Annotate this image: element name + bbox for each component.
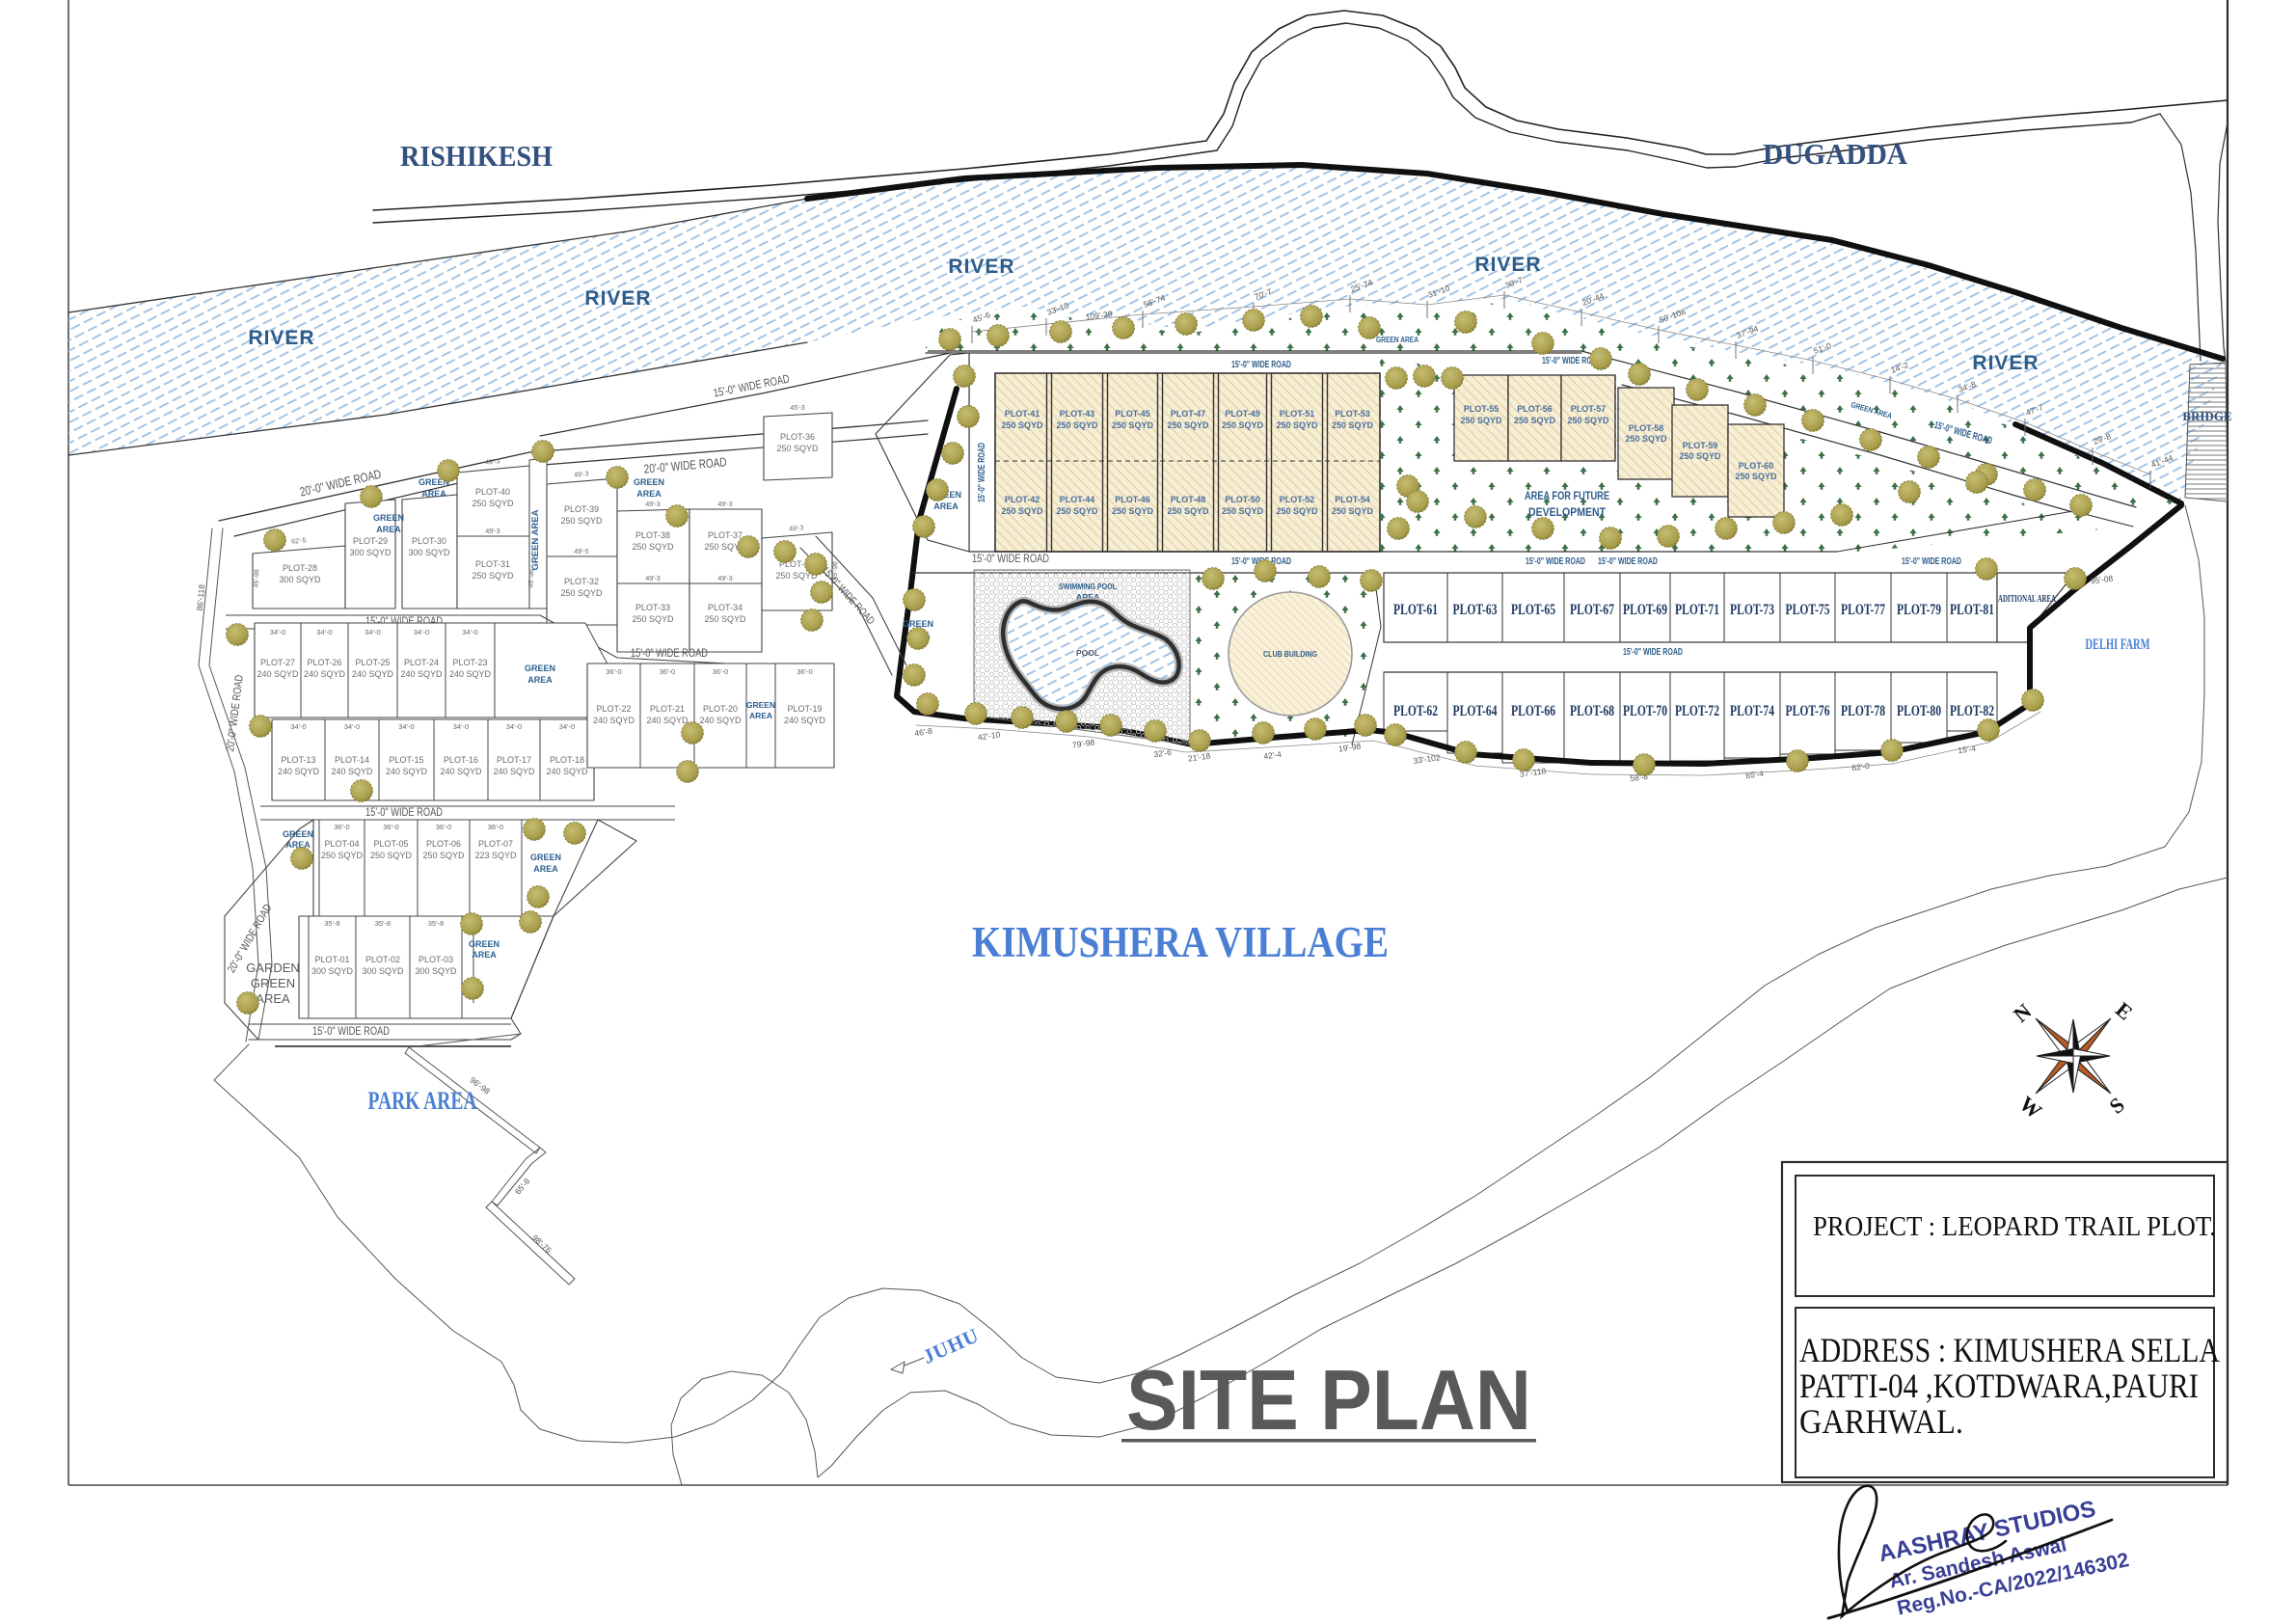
svg-text:250 SQYD: 250 SQYD (776, 444, 819, 453)
svg-text:15'-0" WIDE ROAD: 15'-0" WIDE ROAD (312, 1024, 390, 1038)
svg-text:PLOT-62: PLOT-62 (1393, 703, 1438, 719)
svg-text:36'-0: 36'-0 (383, 823, 398, 831)
svg-text:250 SQYD: 250 SQYD (632, 614, 674, 624)
svg-text:34'-0: 34'-0 (290, 722, 306, 731)
svg-text:PLOT-61: PLOT-61 (1393, 602, 1438, 618)
svg-text:GREEN: GREEN (530, 853, 561, 862)
svg-text:AREA: AREA (472, 950, 497, 960)
svg-text:GREEN: GREEN (469, 939, 500, 949)
svg-text:PLOT-17: PLOT-17 (497, 755, 531, 765)
svg-text:PLOT-82: PLOT-82 (1950, 703, 1994, 719)
svg-text:PLOT-29: PLOT-29 (353, 536, 388, 546)
svg-text:36'-0: 36'-0 (713, 667, 728, 676)
svg-text:AREA: AREA (376, 525, 401, 534)
svg-text:45'-98: 45'-98 (528, 569, 536, 588)
svg-text:PLOT-02: PLOT-02 (365, 955, 400, 964)
svg-text:PLOT-07: PLOT-07 (478, 839, 513, 849)
svg-text:34'-0: 34'-0 (414, 628, 429, 636)
svg-text:62'-5: 62'-5 (291, 537, 307, 545)
svg-text:PLOT-37: PLOT-37 (708, 530, 743, 540)
svg-text:PLOT-01: PLOT-01 (314, 955, 349, 964)
svg-text:PLOT-52: PLOT-52 (1280, 495, 1315, 504)
svg-text:PROJECT : LEOPARD TRAIL PLOT.: PROJECT : LEOPARD TRAIL PLOT. (1813, 1211, 2216, 1242)
svg-text:PLOT-72: PLOT-72 (1675, 703, 1719, 719)
svg-text:RIVER: RIVER (248, 327, 314, 349)
svg-text:ADDRESS : KIMUSHERA SELLA: ADDRESS : KIMUSHERA SELLA (1799, 1331, 2220, 1369)
svg-text:PLOT-63: PLOT-63 (1453, 602, 1498, 618)
svg-text:34'-0: 34'-0 (453, 722, 469, 731)
svg-text:36'-0: 36'-0 (797, 667, 812, 676)
svg-text:PLOT-74: PLOT-74 (1730, 703, 1774, 719)
svg-text:34'-0: 34'-0 (398, 722, 414, 731)
svg-text:240 SQYD: 240 SQYD (699, 716, 742, 725)
svg-text:15'-0" WIDE ROAD: 15'-0" WIDE ROAD (1231, 359, 1291, 370)
svg-text:PLOT-65: PLOT-65 (1511, 602, 1555, 618)
svg-text:250 SQYD: 250 SQYD (1679, 451, 1721, 461)
svg-text:PLOT-51: PLOT-51 (1280, 409, 1315, 419)
svg-text:GARHWAL.: GARHWAL. (1799, 1402, 1963, 1441)
svg-text:PLOT-40: PLOT-40 (475, 487, 510, 497)
svg-text:250 SQYD: 250 SQYD (1056, 420, 1098, 430)
svg-text:300 SQYD: 300 SQYD (408, 548, 450, 557)
svg-text:15'-0" WIDE ROAD: 15'-0" WIDE ROAD (1902, 555, 1961, 567)
svg-text:49'-3: 49'-3 (717, 501, 732, 508)
svg-text:250 SQYD: 250 SQYD (1735, 472, 1777, 481)
svg-text:PLOT-05: PLOT-05 (373, 839, 408, 849)
svg-text:PATTI-04 ,KOTDWARA,PAURI: PATTI-04 ,KOTDWARA,PAURI (1799, 1367, 2199, 1405)
svg-text:PLOT-76: PLOT-76 (1786, 703, 1830, 719)
svg-text:RISHIKESH: RISHIKESH (400, 139, 553, 173)
svg-text:15'-0" WIDE ROAD: 15'-0" WIDE ROAD (976, 443, 987, 502)
svg-text:300 SQYD: 300 SQYD (415, 966, 457, 976)
svg-text:34'-0: 34'-0 (559, 722, 575, 731)
svg-text:PLOT-27: PLOT-27 (260, 658, 295, 667)
svg-text:PLOT-81: PLOT-81 (1950, 602, 1994, 618)
svg-text:PLOT-04: PLOT-04 (324, 839, 359, 849)
svg-text:PLOT-15: PLOT-15 (389, 755, 423, 765)
svg-text:34'-0: 34'-0 (462, 628, 477, 636)
svg-text:AREA: AREA (749, 711, 772, 720)
svg-text:250 SQYD: 250 SQYD (1056, 506, 1098, 516)
svg-text:DUGADDA: DUGADDA (1763, 137, 1908, 171)
svg-text:49'-3: 49'-3 (574, 471, 589, 478)
svg-text:PLOT-21: PLOT-21 (650, 704, 685, 714)
svg-text:PLOT-33: PLOT-33 (635, 603, 670, 612)
svg-text:PLOT-45: PLOT-45 (1115, 409, 1150, 419)
svg-text:15'-0" WIDE ROAD: 15'-0" WIDE ROAD (972, 552, 1049, 565)
svg-text:34'-0: 34'-0 (365, 628, 380, 636)
svg-text:250 SQYD: 250 SQYD (321, 851, 364, 860)
svg-text:CLUB BUILDING: CLUB BUILDING (1263, 649, 1317, 659)
svg-text:GREEN: GREEN (525, 663, 555, 673)
svg-text:PLOT-64: PLOT-64 (1453, 703, 1498, 719)
svg-text:240 SQYD: 240 SQYD (386, 767, 428, 776)
svg-text:250 SQYD: 250 SQYD (1001, 420, 1043, 430)
svg-text:AREA: AREA (533, 864, 558, 874)
svg-text:250 SQYD: 250 SQYD (472, 571, 514, 581)
svg-text:49'-5: 49'-5 (574, 549, 588, 555)
svg-text:GREEN: GREEN (251, 976, 295, 990)
svg-text:PLOT-49: PLOT-49 (1225, 409, 1260, 419)
svg-text:34'-0: 34'-0 (506, 722, 522, 731)
svg-text:DEVELOPMENT: DEVELOPMENT (1528, 505, 1607, 519)
svg-text:POOL: POOL (1076, 648, 1099, 658)
svg-text:AREA: AREA (527, 675, 553, 685)
svg-text:PARK AREA: PARK AREA (368, 1087, 477, 1115)
svg-text:PLOT-18: PLOT-18 (550, 755, 584, 765)
svg-text:PLOT-59: PLOT-59 (1683, 441, 1718, 450)
svg-text:240 SQYD: 240 SQYD (352, 669, 394, 679)
svg-text:250 SQYD: 250 SQYD (1332, 420, 1374, 430)
svg-text:PLOT-58: PLOT-58 (1629, 423, 1664, 433)
svg-text:GREEN: GREEN (373, 513, 404, 523)
svg-text:PLOT-43: PLOT-43 (1060, 409, 1095, 419)
svg-text:PLOT-19: PLOT-19 (787, 704, 822, 714)
svg-text:AREA: AREA (421, 489, 446, 499)
svg-text:AREA: AREA (636, 489, 662, 499)
svg-text:PLOT-28: PLOT-28 (283, 563, 317, 573)
svg-text:45'-98: 45'-98 (254, 569, 261, 588)
svg-text:PLOT-03: PLOT-03 (419, 955, 453, 964)
svg-text:49'-3: 49'-3 (645, 576, 660, 582)
svg-text:PLOT-36: PLOT-36 (780, 432, 815, 442)
svg-text:250 SQYD: 250 SQYD (1276, 506, 1318, 516)
svg-text:PLOT-73: PLOT-73 (1730, 602, 1774, 618)
svg-text:PLOT-53: PLOT-53 (1335, 409, 1370, 419)
svg-text:GREEN AREA: GREEN AREA (530, 509, 541, 570)
svg-text:PLOT-67: PLOT-67 (1570, 602, 1614, 618)
svg-text:240 SQYD: 240 SQYD (784, 716, 826, 725)
svg-text:GREEN: GREEN (634, 477, 664, 487)
svg-text:PLOT-41: PLOT-41 (1005, 409, 1040, 419)
svg-text:250 SQYD: 250 SQYD (1567, 416, 1609, 425)
svg-text:PLOT-46: PLOT-46 (1115, 495, 1150, 504)
svg-text:DELHI FARM: DELHI FARM (2086, 636, 2150, 653)
svg-text:250 SQYD: 250 SQYD (704, 614, 746, 624)
svg-text:PLOT-68: PLOT-68 (1570, 703, 1614, 719)
svg-text:PLOT-06: PLOT-06 (426, 839, 461, 849)
svg-text:49'-3: 49'-3 (789, 525, 804, 532)
svg-text:240 SQYD: 240 SQYD (546, 767, 588, 776)
svg-text:250 SQYD: 250 SQYD (1460, 416, 1502, 425)
svg-text:PLOT-78: PLOT-78 (1841, 703, 1885, 719)
svg-text:GARDEN: GARDEN (246, 961, 300, 975)
svg-text:PLOT-16: PLOT-16 (444, 755, 478, 765)
svg-text:240 SQYD: 240 SQYD (593, 716, 635, 725)
svg-text:PLOT-24: PLOT-24 (404, 658, 439, 667)
svg-text:PLOT-20: PLOT-20 (703, 704, 738, 714)
svg-text:300 SQYD: 300 SQYD (349, 548, 392, 557)
svg-text:ADITIONAL AREA: ADITIONAL AREA (1998, 593, 2056, 605)
svg-text:300 SQYD: 300 SQYD (362, 966, 404, 976)
svg-text:AREA FOR FUTURE: AREA FOR FUTURE (1525, 489, 1609, 502)
svg-text:PLOT-50: PLOT-50 (1225, 495, 1260, 504)
svg-text:250 SQYD: 250 SQYD (632, 542, 674, 552)
svg-text:PLOT-13: PLOT-13 (281, 755, 315, 765)
svg-text:36'-0: 36'-0 (488, 823, 503, 831)
svg-text:240 SQYD: 240 SQYD (440, 767, 482, 776)
svg-text:15'-0" WIDE ROAD: 15'-0" WIDE ROAD (1598, 555, 1658, 567)
svg-text:240 SQYD: 240 SQYD (331, 767, 373, 776)
svg-text:35'-8: 35'-8 (375, 919, 391, 928)
svg-text:15'-0" WIDE ROAD: 15'-0" WIDE ROAD (631, 646, 708, 660)
svg-text:45'-3: 45'-3 (790, 405, 804, 412)
svg-text:PLOT-66: PLOT-66 (1511, 703, 1555, 719)
svg-text:PLOT-39: PLOT-39 (564, 504, 599, 514)
svg-text:GREEN AREA: GREEN AREA (1376, 336, 1418, 344)
svg-text:250 SQYD: 250 SQYD (422, 851, 465, 860)
svg-text:34'-0: 34'-0 (316, 628, 332, 636)
svg-text:PLOT-79: PLOT-79 (1897, 602, 1941, 618)
svg-text:250 SQYD: 250 SQYD (1514, 416, 1556, 425)
svg-text:240 SQYD: 240 SQYD (304, 669, 346, 679)
svg-text:35'-8: 35'-8 (324, 919, 339, 928)
svg-text:PLOT-30: PLOT-30 (412, 536, 446, 546)
svg-text:36'-0: 36'-0 (436, 823, 451, 831)
svg-text:PLOT-56: PLOT-56 (1517, 404, 1553, 414)
svg-text:240 SQYD: 240 SQYD (400, 669, 443, 679)
svg-text:250 SQYD: 250 SQYD (1112, 506, 1154, 516)
svg-text:PLOT-42: PLOT-42 (1005, 495, 1040, 504)
svg-text:34'-0: 34'-0 (270, 628, 285, 636)
svg-text:PLOT-80: PLOT-80 (1897, 703, 1941, 719)
svg-text:36'-0: 36'-0 (660, 667, 675, 676)
svg-text:250 SQYD: 250 SQYD (1167, 506, 1209, 516)
svg-text:300 SQYD: 300 SQYD (311, 966, 354, 976)
svg-text:PLOT-55: PLOT-55 (1464, 404, 1499, 414)
svg-text:250 SQYD: 250 SQYD (560, 588, 603, 598)
svg-text:240 SQYD: 240 SQYD (449, 669, 492, 679)
svg-text:PLOT-34: PLOT-34 (708, 603, 743, 612)
svg-text:GREEN: GREEN (746, 700, 775, 710)
svg-text:250 SQYD: 250 SQYD (1222, 420, 1264, 430)
svg-text:49'-3: 49'-3 (485, 458, 500, 466)
svg-text:34'-0: 34'-0 (344, 722, 360, 731)
svg-text:PLOT-54: PLOT-54 (1335, 495, 1370, 504)
svg-text:PLOT-44: PLOT-44 (1060, 495, 1095, 504)
svg-text:240 SQYD: 240 SQYD (646, 716, 689, 725)
svg-text:PLOT-23: PLOT-23 (452, 658, 487, 667)
svg-text:250 SQYD: 250 SQYD (560, 516, 603, 526)
svg-text:PLOT-75: PLOT-75 (1786, 602, 1830, 618)
svg-text:SITE PLAN: SITE PLAN (1126, 1352, 1531, 1448)
svg-text:PLOT-26: PLOT-26 (307, 658, 341, 667)
svg-text:250 SQYD: 250 SQYD (1332, 506, 1374, 516)
svg-text:RIVER: RIVER (948, 256, 1014, 278)
svg-text:PLOT-47: PLOT-47 (1171, 409, 1206, 419)
svg-text:49'-3: 49'-3 (485, 528, 500, 535)
svg-text:36'-0: 36'-0 (334, 823, 349, 831)
svg-text:PLOT-25: PLOT-25 (355, 658, 390, 667)
svg-text:300 SQYD: 300 SQYD (279, 575, 321, 584)
svg-text:RIVER: RIVER (584, 287, 651, 310)
svg-text:240 SQYD: 240 SQYD (257, 669, 299, 679)
svg-text:BRIDGE: BRIDGE (2182, 409, 2231, 423)
svg-text:PLOT-32: PLOT-32 (564, 577, 599, 586)
svg-text:PLOT-48: PLOT-48 (1171, 495, 1206, 504)
svg-text:AREA: AREA (933, 501, 959, 511)
svg-text:PLOT-71: PLOT-71 (1675, 602, 1719, 618)
svg-text:250 SQYD: 250 SQYD (472, 499, 514, 508)
svg-text:240 SQYD: 240 SQYD (278, 767, 320, 776)
svg-text:AREA: AREA (256, 991, 290, 1006)
svg-text:49'-3: 49'-3 (645, 501, 660, 508)
svg-text:RIVER: RIVER (1972, 352, 2039, 374)
svg-text:250 SQYD: 250 SQYD (1276, 420, 1318, 430)
svg-text:250 SQYD: 250 SQYD (1167, 420, 1209, 430)
svg-text:PLOT-60: PLOT-60 (1739, 461, 1774, 471)
svg-text:PLOT-22: PLOT-22 (596, 704, 631, 714)
svg-text:RIVER: RIVER (1474, 254, 1541, 276)
svg-text:250 SQYD: 250 SQYD (1222, 506, 1264, 516)
svg-text:223 SQYD: 223 SQYD (474, 851, 517, 860)
svg-text:PLOT-70: PLOT-70 (1623, 703, 1667, 719)
svg-text:250 SQYD: 250 SQYD (370, 851, 413, 860)
svg-text:240 SQYD: 240 SQYD (493, 767, 535, 776)
svg-text:PLOT-57: PLOT-57 (1571, 404, 1607, 414)
svg-text:49'-3: 49'-3 (717, 576, 732, 582)
svg-text:36'-0: 36'-0 (606, 667, 621, 676)
svg-text:250 SQYD: 250 SQYD (1112, 420, 1154, 430)
svg-text:PLOT-14: PLOT-14 (335, 755, 369, 765)
svg-text:250 SQYD: 250 SQYD (1625, 434, 1667, 444)
svg-text:PLOT-31: PLOT-31 (475, 559, 510, 569)
svg-text:250 SQYD: 250 SQYD (1001, 506, 1043, 516)
svg-text:15'-0" WIDE ROAD: 15'-0" WIDE ROAD (1526, 555, 1585, 567)
svg-text:PLOT-77: PLOT-77 (1841, 602, 1885, 618)
svg-text:SWIMMING POOL: SWIMMING POOL (1059, 582, 1117, 591)
svg-text:KIMUSHERA VILLAGE: KIMUSHERA VILLAGE (972, 918, 1389, 966)
svg-text:15'-0" WIDE ROAD: 15'-0" WIDE ROAD (1623, 646, 1683, 658)
svg-text:35'-8: 35'-8 (428, 919, 444, 928)
svg-text:PLOT-69: PLOT-69 (1623, 602, 1667, 618)
svg-text:PLOT-38: PLOT-38 (635, 530, 670, 540)
svg-text:15'-0" WIDE ROAD: 15'-0" WIDE ROAD (365, 805, 443, 819)
